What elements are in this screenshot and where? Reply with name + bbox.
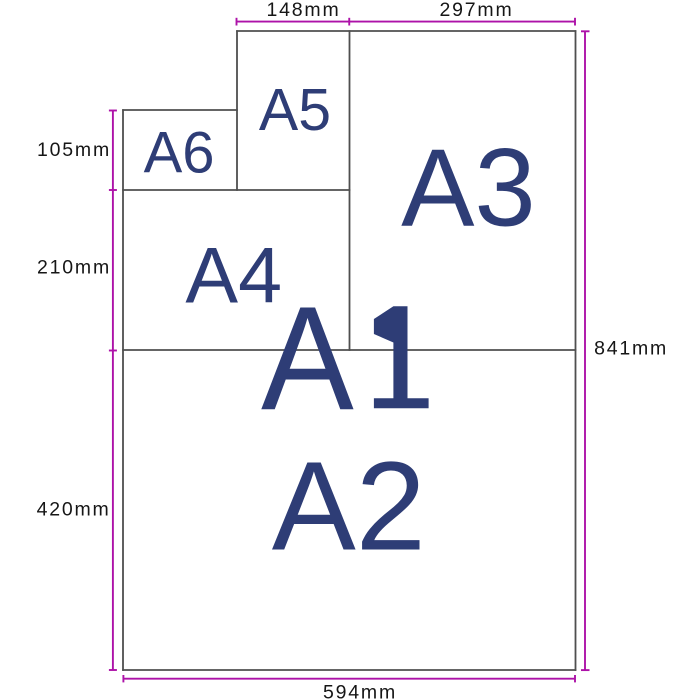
svg-text:A5: A5 bbox=[259, 77, 331, 143]
svg-text:841mm: 841mm bbox=[594, 338, 668, 360]
svg-text:A: A bbox=[261, 276, 354, 441]
svg-text:105mm: 105mm bbox=[37, 139, 111, 161]
svg-text:210mm: 210mm bbox=[37, 257, 111, 279]
svg-text:A2: A2 bbox=[272, 436, 426, 577]
svg-text:594mm: 594mm bbox=[323, 682, 397, 700]
svg-text:A3: A3 bbox=[401, 127, 536, 250]
svg-text:148mm: 148mm bbox=[266, 0, 340, 21]
svg-text:A6: A6 bbox=[144, 120, 215, 185]
svg-text:297mm: 297mm bbox=[439, 0, 513, 21]
svg-text:420mm: 420mm bbox=[37, 499, 111, 521]
